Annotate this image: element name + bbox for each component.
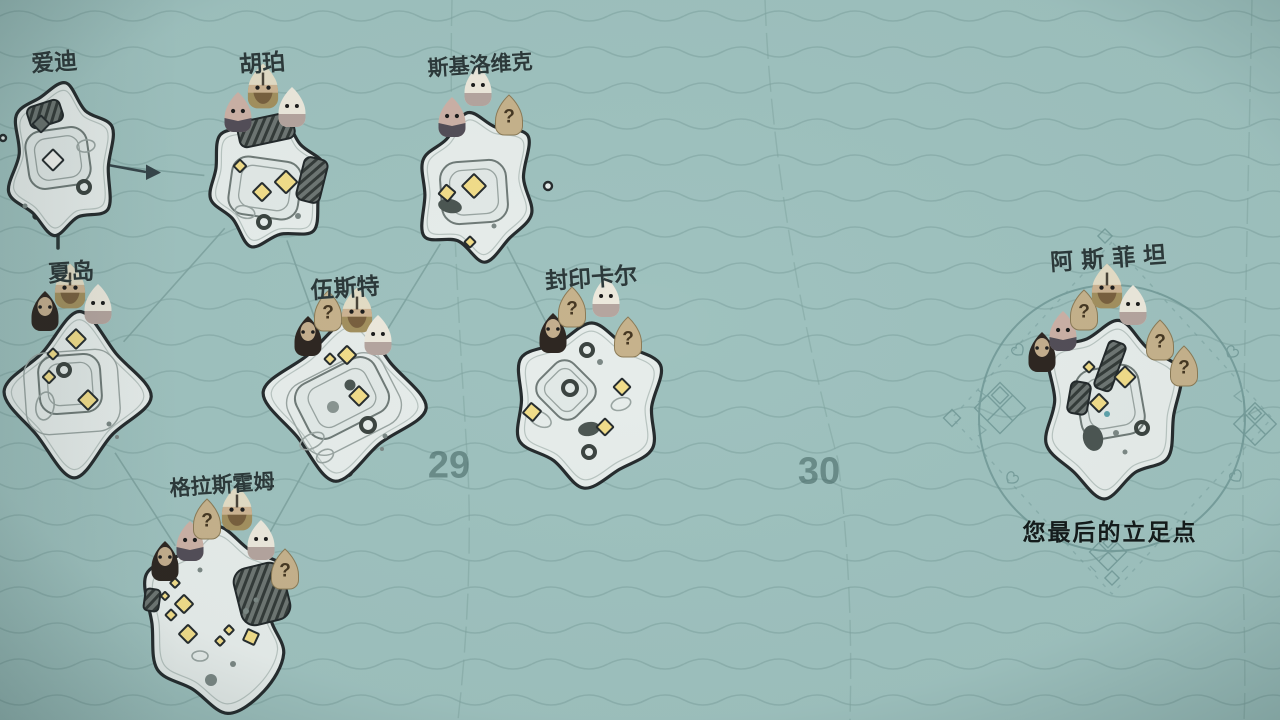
pebble-dot (597, 359, 603, 365)
pebble-dot (1113, 430, 1119, 436)
campaign-map: ????????? 爱迪 胡珀 斯基洛维克 夏岛 伍斯特 封印卡尔 格拉斯霍姆 … (0, 0, 1280, 720)
svg-text:?: ? (322, 303, 334, 324)
svg-text:?: ? (1078, 302, 1090, 323)
pebble-dot (380, 447, 384, 451)
svg-text:?: ? (622, 329, 634, 350)
svg-text:?: ? (201, 511, 213, 532)
pebble-dot (198, 568, 203, 573)
pebble-dot (383, 434, 388, 439)
pebble-dot (243, 608, 249, 614)
rock-patch (345, 380, 356, 391)
pebble-dot (115, 435, 119, 439)
islet (544, 182, 552, 190)
pebble-dot (295, 213, 301, 219)
stone-dot (327, 401, 339, 413)
islet (0, 135, 6, 141)
svg-text:?: ? (503, 107, 515, 128)
pebble-dot (230, 661, 236, 667)
pebble-dot (254, 598, 259, 603)
pebble-dot (23, 204, 28, 209)
pebble-dot (1123, 450, 1128, 455)
pond-dot (1104, 411, 1110, 417)
pebble-dot (107, 422, 112, 427)
svg-text:?: ? (566, 299, 578, 320)
svg-text:?: ? (1178, 358, 1190, 379)
pebble-dot (205, 674, 217, 686)
pebble-dot (492, 224, 497, 229)
svg-text:?: ? (1154, 332, 1166, 353)
ruin-patch (1066, 381, 1091, 416)
ruin-patch (143, 588, 161, 612)
svg-text:?: ? (279, 561, 291, 582)
map-canvas: ????????? (0, 0, 1280, 720)
